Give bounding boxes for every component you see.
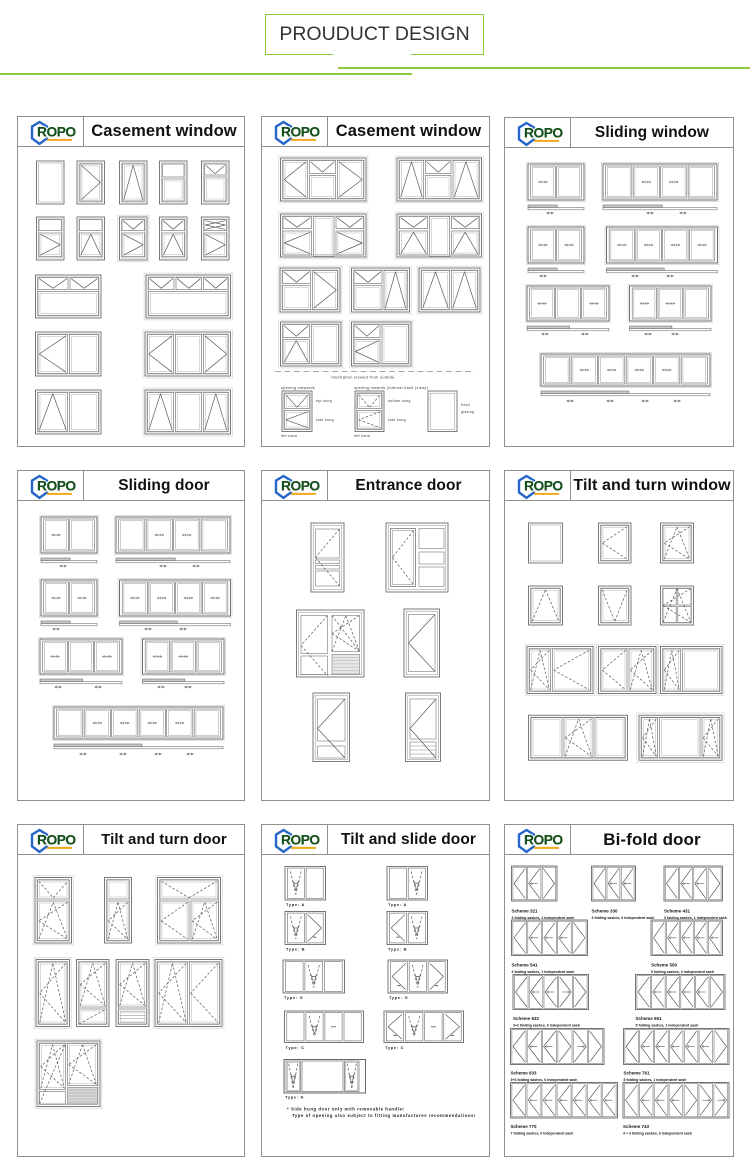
svg-text:Scheme 633: Scheme 633 (511, 1071, 538, 1076)
svg-text:Scheme 770: Scheme 770 (511, 1124, 538, 1129)
svg-text:ROPO: ROPO (37, 832, 76, 847)
svg-text:Scheme 550: Scheme 550 (651, 963, 678, 968)
svg-text:Type: C: Type: C (286, 1045, 305, 1050)
svg-text:side hung: side hung (316, 418, 334, 422)
svg-text:6 folding sashes, 1 independen: 6 folding sashes, 1 independent sash (624, 1078, 687, 1082)
svg-text:3 folding sashes, 0 independen: 3 folding sashes, 0 independent sash (592, 916, 655, 920)
svg-text:Type: A: Type: A (388, 902, 407, 907)
svg-text:Type: A: Type: A (286, 902, 305, 907)
svg-text:3+3 folding sashes, 0 independ: 3+3 folding sashes, 0 independent sash (511, 1078, 578, 1082)
svg-text:Scheme 330: Scheme 330 (592, 909, 619, 914)
svg-text:ROPO: ROPO (524, 125, 563, 140)
svg-text:Type: G: Type: G (284, 995, 304, 1000)
svg-text:opening outwards: opening outwards (281, 386, 315, 390)
svg-text:ROPO: ROPO (37, 124, 76, 139)
svg-text:3 folding sashes, 1 independen: 3 folding sashes, 1 independent sash (664, 916, 727, 920)
svg-text:Scheme 532: Scheme 532 (513, 1016, 540, 1021)
svg-text:left hand: left hand (281, 434, 297, 438)
svg-text:Scheme 541: Scheme 541 (512, 963, 539, 968)
svg-text:5 folding sashes, 1 independen: 5 folding sashes, 1 independent sash (636, 1024, 699, 1028)
svg-text:Type: B: Type: B (388, 947, 407, 952)
svg-text:side hung: side hung (388, 418, 406, 422)
svg-text:ROPO: ROPO (281, 478, 320, 493)
svg-text:bottom hung: bottom hung (388, 399, 411, 403)
svg-text:left hand: left hand (354, 434, 370, 438)
svg-text:fixed: fixed (461, 403, 470, 407)
svg-text:ROPO: ROPO (281, 832, 320, 847)
svg-text:3 folding sashes, 1 independen: 3 folding sashes, 1 independent sash (512, 916, 575, 920)
svg-text:3+2 folding sashes, 0 independ: 3+2 folding sashes, 0 independent sash (513, 1024, 580, 1028)
svg-text:5 folding sashes, 0 independen: 5 folding sashes, 0 independent sash (651, 970, 714, 974)
svg-text:Type of opening also subject t: Type of opening also subject to fitting … (292, 1113, 476, 1118)
svg-text:ROPO: ROPO (37, 478, 76, 493)
svg-text:Scheme 761: Scheme 761 (624, 1071, 651, 1076)
svg-text:ROPO: ROPO (281, 124, 320, 139)
svg-text:7 folding sashes, 0 independen: 7 folding sashes, 0 independent sash (511, 1132, 574, 1136)
svg-text:Type: G: Type: G (389, 995, 409, 1000)
svg-text:4 + 3 folding sashes, 0 indepe: 4 + 3 folding sashes, 0 independent sash (623, 1132, 692, 1136)
svg-text:illustration viewed from outsi: illustration viewed from outside (331, 376, 394, 380)
svg-text:Scheme 431: Scheme 431 (664, 909, 691, 914)
svg-text:Scheme 651: Scheme 651 (636, 1016, 663, 1021)
svg-text:Scheme 321: Scheme 321 (512, 909, 539, 914)
svg-text:Type: C: Type: C (385, 1045, 404, 1050)
svg-text:* Side hung door only with rem: * Side hung door only with removable han… (287, 1107, 404, 1112)
svg-text:4 folding sashes, 1 independen: 4 folding sashes, 1 independent sash (512, 970, 575, 974)
svg-text:glazing: glazing (461, 410, 474, 414)
svg-text:Type: B: Type: B (286, 947, 305, 952)
svg-text:Type: K: Type: K (285, 1095, 304, 1100)
svg-text:ROPO: ROPO (524, 478, 563, 493)
svg-text:ROPO: ROPO (524, 832, 563, 847)
svg-text:top hung: top hung (316, 399, 332, 403)
svg-text:Scheme 743: Scheme 743 (623, 1124, 650, 1129)
svg-text:opening inwards (internal hand: opening inwards (internal hand (view)) (354, 386, 428, 390)
